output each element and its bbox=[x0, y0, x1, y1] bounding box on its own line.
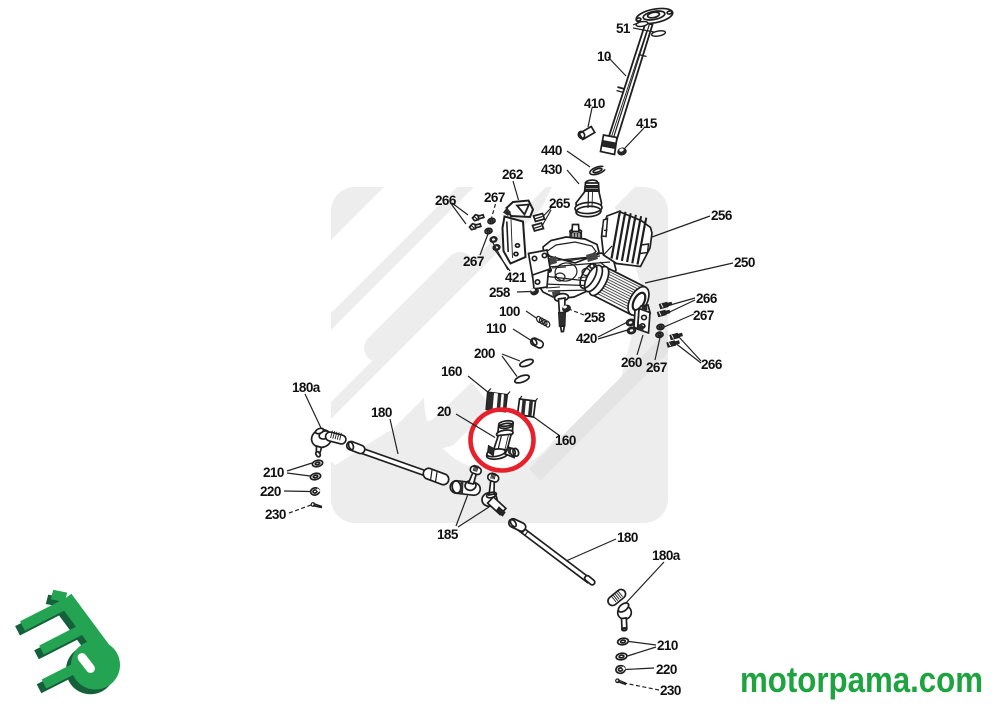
svg-text:430: 430 bbox=[541, 162, 562, 177]
svg-text:220: 220 bbox=[260, 484, 281, 499]
svg-text:180a: 180a bbox=[652, 548, 681, 563]
svg-text:260: 260 bbox=[621, 355, 642, 370]
svg-text:110: 110 bbox=[486, 321, 506, 336]
svg-text:210: 210 bbox=[263, 465, 284, 480]
svg-text:265: 265 bbox=[549, 196, 571, 211]
svg-text:410: 410 bbox=[584, 96, 605, 111]
svg-text:200: 200 bbox=[474, 346, 495, 361]
svg-text:258: 258 bbox=[489, 285, 511, 300]
svg-text:266: 266 bbox=[696, 291, 718, 306]
svg-text:440: 440 bbox=[541, 143, 562, 158]
svg-text:180: 180 bbox=[617, 530, 638, 545]
svg-text:266: 266 bbox=[435, 193, 457, 208]
svg-text:262: 262 bbox=[502, 167, 523, 182]
svg-text:420: 420 bbox=[576, 331, 597, 346]
svg-text:160: 160 bbox=[441, 364, 462, 379]
svg-text:51: 51 bbox=[616, 21, 631, 36]
svg-text:421: 421 bbox=[505, 270, 527, 285]
svg-text:10: 10 bbox=[597, 49, 611, 64]
svg-text:267: 267 bbox=[646, 360, 667, 375]
svg-text:20: 20 bbox=[437, 404, 451, 419]
svg-text:180: 180 bbox=[371, 405, 392, 420]
svg-text:100: 100 bbox=[499, 304, 520, 319]
svg-text:220: 220 bbox=[656, 662, 677, 677]
svg-text:230: 230 bbox=[660, 683, 681, 698]
svg-text:230: 230 bbox=[265, 507, 286, 522]
svg-text:266: 266 bbox=[701, 357, 723, 372]
svg-text:185: 185 bbox=[437, 527, 459, 542]
svg-text:motorpama.com: motorpama.com bbox=[740, 659, 983, 700]
svg-text:250: 250 bbox=[734, 255, 755, 270]
svg-text:180a: 180a bbox=[292, 380, 321, 395]
svg-text:267: 267 bbox=[693, 308, 714, 323]
svg-text:160: 160 bbox=[555, 433, 576, 448]
svg-text:415: 415 bbox=[636, 116, 658, 131]
svg-text:267: 267 bbox=[484, 190, 505, 205]
svg-text:210: 210 bbox=[657, 638, 678, 653]
svg-text:267: 267 bbox=[463, 254, 484, 269]
svg-text:258: 258 bbox=[584, 310, 606, 325]
svg-text:256: 256 bbox=[711, 208, 733, 223]
